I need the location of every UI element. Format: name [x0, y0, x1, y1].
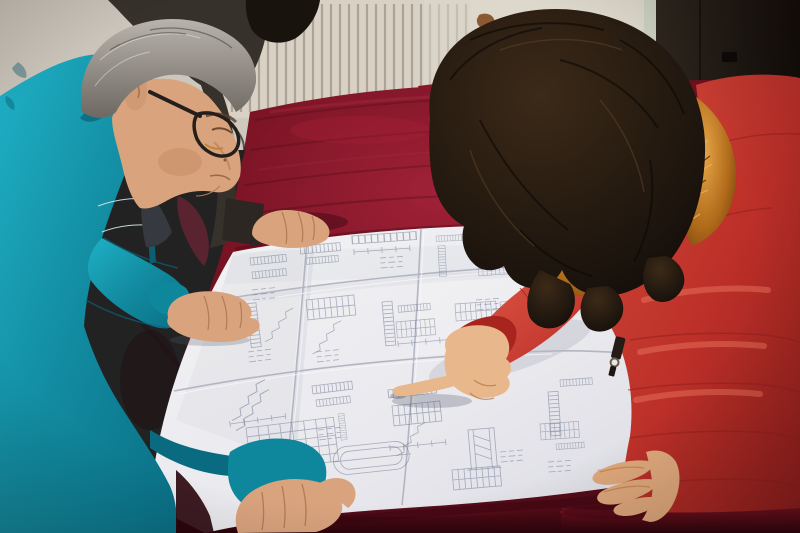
vignette: [0, 0, 800, 533]
scene-canvas: [0, 0, 800, 533]
photo-scene: Two workers lean over a large folded eng…: [0, 0, 800, 533]
